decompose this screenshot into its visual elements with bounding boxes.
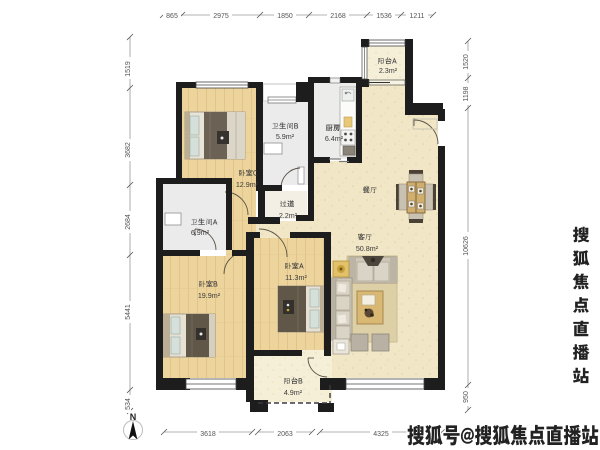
svg-text:5.9m²: 5.9m² (276, 132, 295, 141)
svg-text:6.9m²: 6.9m² (191, 228, 210, 237)
svg-text:2063: 2063 (277, 431, 293, 438)
svg-text:4325: 4325 (373, 431, 389, 438)
svg-text:3618: 3618 (200, 431, 216, 438)
svg-text:6.4m²: 6.4m² (325, 134, 344, 143)
svg-text:12.9m²: 12.9m² (236, 180, 259, 189)
svg-text:1211: 1211 (409, 13, 424, 20)
svg-text:2975: 2975 (213, 13, 229, 20)
svg-text:2.3m²: 2.3m² (379, 66, 398, 75)
svg-text:2.2m²: 2.2m² (279, 211, 298, 220)
svg-text:865: 865 (166, 13, 178, 20)
svg-text:1519: 1519 (125, 61, 132, 77)
svg-text:950: 950 (463, 391, 470, 403)
svg-text:4.9m²: 4.9m² (284, 388, 303, 397)
svg-text:19.9m²: 19.9m² (198, 291, 221, 300)
svg-text:2168: 2168 (330, 13, 346, 20)
svg-text:1536: 1536 (376, 13, 392, 20)
svg-text:3682: 3682 (125, 142, 132, 158)
svg-text:2684: 2684 (125, 214, 132, 230)
svg-text:1850: 1850 (277, 13, 293, 20)
svg-text:1520: 1520 (463, 54, 470, 70)
svg-text:10626: 10626 (463, 236, 470, 256)
svg-text:5441: 5441 (125, 304, 132, 320)
svg-text:1198: 1198 (463, 86, 470, 101)
svg-text:11.3m²: 11.3m² (285, 273, 307, 282)
svg-text:534: 534 (125, 398, 132, 410)
svg-text:50.8m²: 50.8m² (356, 244, 379, 253)
